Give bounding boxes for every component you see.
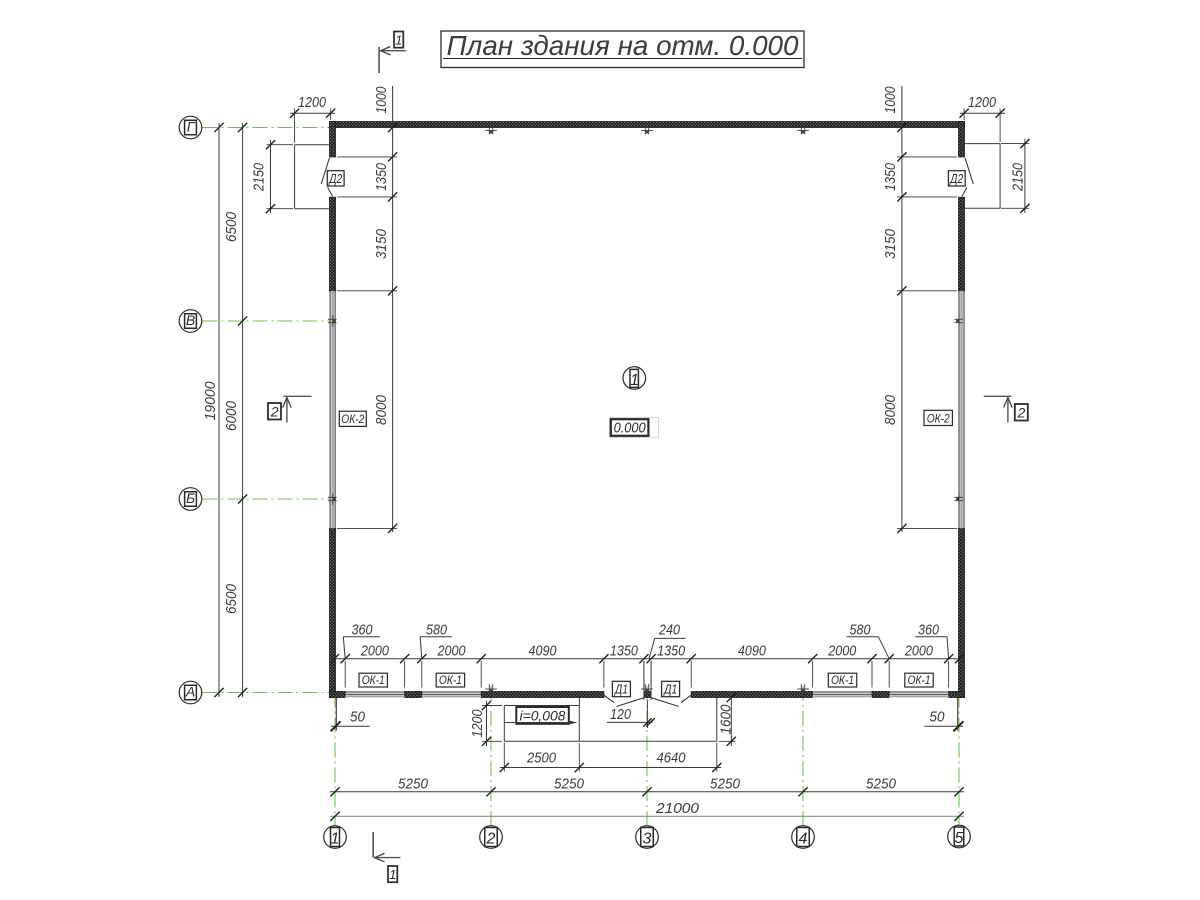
svg-text:ОК-1: ОК-1 [831, 673, 854, 687]
svg-text:50: 50 [350, 710, 365, 726]
svg-text:1000: 1000 [374, 87, 390, 114]
svg-text:1: 1 [331, 830, 340, 847]
svg-text:8000: 8000 [374, 395, 390, 425]
svg-text:ОК-1: ОК-1 [439, 673, 462, 687]
svg-text:ОК-1: ОК-1 [362, 673, 385, 687]
svg-text:21000: 21000 [655, 801, 699, 817]
svg-text:4090: 4090 [529, 643, 557, 659]
svg-text:240: 240 [658, 623, 680, 639]
svg-text:План здания на отм. 0.000: План здания на отм. 0.000 [447, 30, 799, 61]
svg-text:1200: 1200 [470, 710, 486, 738]
svg-text:1: 1 [630, 372, 639, 389]
svg-text:5250: 5250 [398, 777, 428, 793]
svg-text:1200: 1200 [298, 95, 326, 111]
svg-text:6500: 6500 [224, 584, 240, 614]
svg-text:0.000: 0.000 [614, 420, 646, 436]
svg-text:ОК-2: ОК-2 [927, 411, 950, 425]
svg-text:Д2: Д2 [328, 172, 343, 186]
svg-text:Д2: Д2 [949, 172, 964, 186]
svg-text:5: 5 [955, 830, 964, 847]
svg-text:1200: 1200 [968, 95, 996, 111]
svg-text:5250: 5250 [554, 777, 584, 793]
svg-text:360: 360 [918, 623, 939, 639]
svg-text:ОК-2: ОК-2 [341, 412, 364, 426]
svg-text:2000: 2000 [904, 643, 933, 659]
svg-text:4: 4 [799, 830, 808, 847]
svg-text:1000: 1000 [883, 87, 899, 114]
svg-text:1600: 1600 [719, 705, 735, 735]
svg-text:4640: 4640 [657, 750, 686, 766]
svg-text:3: 3 [643, 830, 652, 847]
svg-text:3150: 3150 [374, 229, 390, 259]
svg-text:2: 2 [486, 830, 496, 847]
svg-text:4090: 4090 [738, 643, 766, 659]
svg-text:Д1: Д1 [663, 683, 678, 697]
svg-text:50: 50 [930, 710, 945, 726]
svg-text:8000: 8000 [883, 395, 899, 425]
svg-text:Б: Б [186, 490, 195, 506]
svg-text:2000: 2000 [827, 643, 856, 659]
svg-text:1350: 1350 [374, 163, 390, 191]
svg-text:5250: 5250 [710, 777, 740, 793]
svg-text:А: А [185, 684, 195, 700]
svg-text:1: 1 [389, 867, 396, 882]
svg-text:2000: 2000 [437, 643, 466, 659]
svg-text:19000: 19000 [203, 382, 219, 421]
svg-text:1350: 1350 [883, 163, 899, 191]
svg-text:2150: 2150 [252, 163, 268, 192]
svg-text:3150: 3150 [883, 229, 899, 259]
svg-text:2500: 2500 [526, 750, 556, 766]
svg-text:2: 2 [1017, 404, 1026, 420]
svg-text:Д1: Д1 [613, 683, 628, 697]
svg-text:6500: 6500 [224, 212, 240, 242]
svg-text:5250: 5250 [866, 777, 896, 793]
svg-text:360: 360 [352, 623, 373, 639]
svg-text:1350: 1350 [610, 643, 638, 659]
svg-text:i=0,008: i=0,008 [520, 707, 566, 723]
svg-text:580: 580 [850, 623, 871, 639]
svg-text:1350: 1350 [657, 643, 685, 659]
svg-text:2150: 2150 [1011, 163, 1027, 192]
svg-text:580: 580 [426, 623, 447, 639]
svg-text:2000: 2000 [360, 643, 389, 659]
svg-text:1: 1 [395, 33, 402, 48]
svg-text:2: 2 [270, 403, 279, 419]
svg-text:120: 120 [610, 707, 631, 723]
svg-text:В: В [186, 312, 195, 328]
svg-text:ОК-1: ОК-1 [908, 673, 931, 687]
svg-text:6000: 6000 [224, 401, 240, 431]
